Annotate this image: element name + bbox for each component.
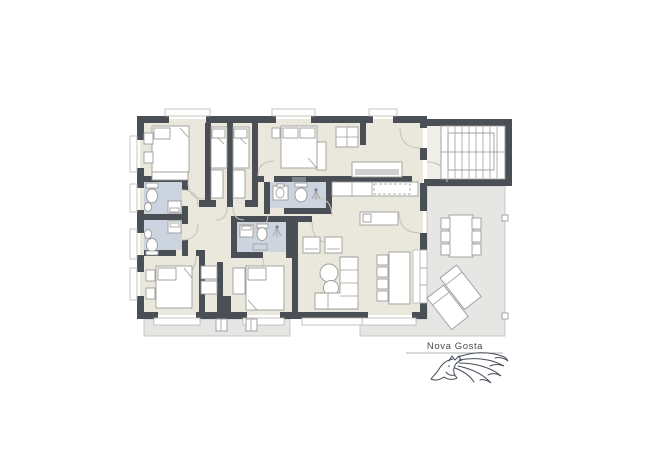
toilet-icon <box>147 239 158 252</box>
closet-shelf-icon <box>201 281 217 294</box>
chair-icon <box>377 279 388 289</box>
staircase <box>441 126 505 179</box>
chair-icon <box>472 218 481 229</box>
nightstand-icon <box>146 288 155 299</box>
chair-icon <box>472 244 481 255</box>
toilet-icon <box>257 228 267 241</box>
dresser-icon <box>152 172 188 180</box>
nightstand-icon <box>272 128 280 138</box>
closet-shelf-icon <box>201 266 217 279</box>
toilet-icon <box>147 189 158 203</box>
sink-icon <box>145 203 152 212</box>
wardrobe-icon <box>233 268 245 294</box>
armchair-icon <box>325 237 342 253</box>
outdoor-dining-table-icon <box>449 215 473 257</box>
wardrobe-icon <box>317 142 326 170</box>
brand-block: Nova Gosta <box>406 341 508 383</box>
chair-icon <box>377 267 388 277</box>
dining-table-icon <box>389 252 410 304</box>
living-room-window <box>420 250 427 303</box>
chair-icon <box>441 218 450 229</box>
chair-icon <box>377 255 388 265</box>
outdoor-dining-set <box>441 215 481 257</box>
wardrobe-icon <box>211 170 223 198</box>
chair-icon <box>441 231 450 242</box>
sink-icon <box>145 230 152 239</box>
nightstand-icon <box>144 152 153 163</box>
floor-plan: Nova Gosta <box>0 0 650 450</box>
nightstand-icon <box>144 133 153 144</box>
toilet-icon <box>295 188 307 202</box>
chair-icon <box>377 291 388 301</box>
chair-icon <box>441 244 450 255</box>
nightstand-icon <box>146 270 155 281</box>
floorplan-page: Nova Gosta <box>0 0 650 450</box>
wardrobe-icon <box>233 170 245 198</box>
brand-label: Nova Gosta <box>427 341 483 352</box>
chair-icon <box>472 231 481 242</box>
armchair-icon <box>303 237 320 253</box>
coffee-table-icon <box>320 264 338 282</box>
horse-logo <box>431 353 508 383</box>
